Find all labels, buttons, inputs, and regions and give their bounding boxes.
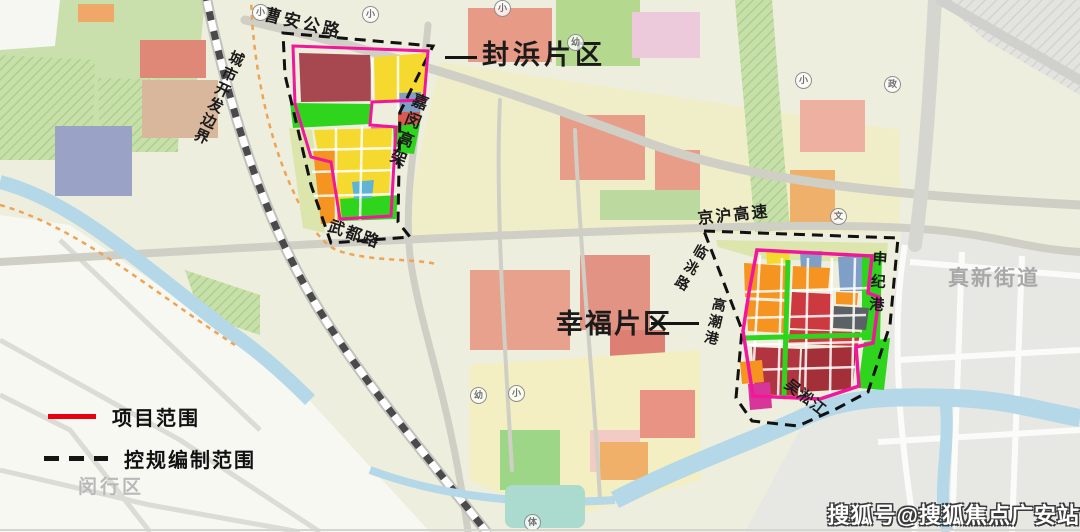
image-bottom-border [0,529,1080,531]
poi-icon: 幼 [567,34,584,51]
legend-swatch-dashed-line [44,456,108,461]
area-label-fengbang: 封浜片区 [482,42,606,69]
legend-label: 项目范围 [112,402,200,431]
watermark: 搜狐号@搜狐焦点广安站 [828,498,1080,530]
poi-icon: 政 [884,76,901,93]
pond [505,485,585,528]
poi-icon: 小 [362,6,379,23]
district-label-zhenxin: 真新街道 [948,268,1040,289]
poi-icon: 小 [494,0,511,17]
poi-icon: 文 [830,208,847,225]
poi-icon: 小 [508,385,525,402]
poi-icon: 幼 [470,387,487,404]
legend-swatch-red-line [48,414,96,419]
xingfu-leader-line [651,322,699,325]
legend-item-project-scope: 项目范围 [48,402,200,431]
fengbang-leader-line [445,56,477,59]
legend-item-plan-boundary: 控规编制范围 [44,444,256,473]
planning-map: 曹安公路 城市开发边界 嘉闵高架 武都路 京沪高速 临洮路 高潮港 申纪港 吴淞… [0,0,1080,532]
legend-label: 控规编制范围 [124,444,256,473]
district-label-minhang: 闵行区 [78,478,144,497]
poi-icon: 小 [795,72,812,89]
poi-icon: 小 [252,4,269,21]
